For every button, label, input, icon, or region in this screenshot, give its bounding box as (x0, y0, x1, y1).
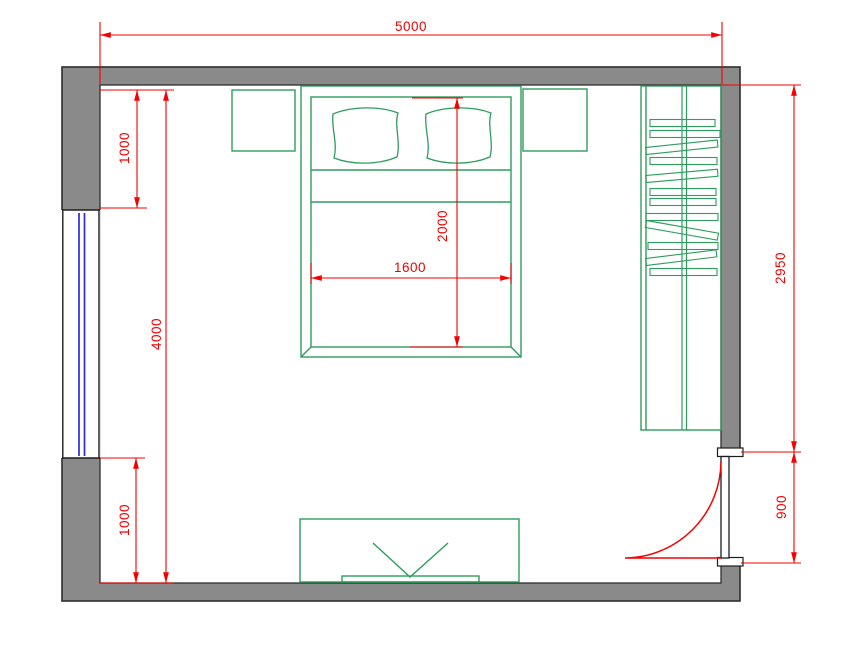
dim-label-window-offset-bottom: 1000 (117, 498, 133, 542)
dim-label-window-offset-top: 1000 (117, 126, 133, 170)
floor-plan-canvas (0, 0, 848, 650)
dim-label-bed-width: 1600 (380, 260, 440, 276)
door-leaf (721, 457, 729, 559)
floor-plan: 5000 1000 4000 1000 2000 1600 2950 900 (0, 0, 848, 650)
dim-label-door-opening: 900 (774, 488, 790, 526)
dim-label-room-width: 5000 (381, 19, 441, 35)
window (61, 210, 101, 458)
dim-label-bed-length: 2000 (435, 204, 451, 248)
dim-label-right-wall-upper: 2950 (773, 246, 789, 290)
door-jamb-top (718, 448, 744, 457)
door-jamb-bottom (718, 558, 744, 567)
dim-label-room-height: 4000 (149, 312, 165, 356)
